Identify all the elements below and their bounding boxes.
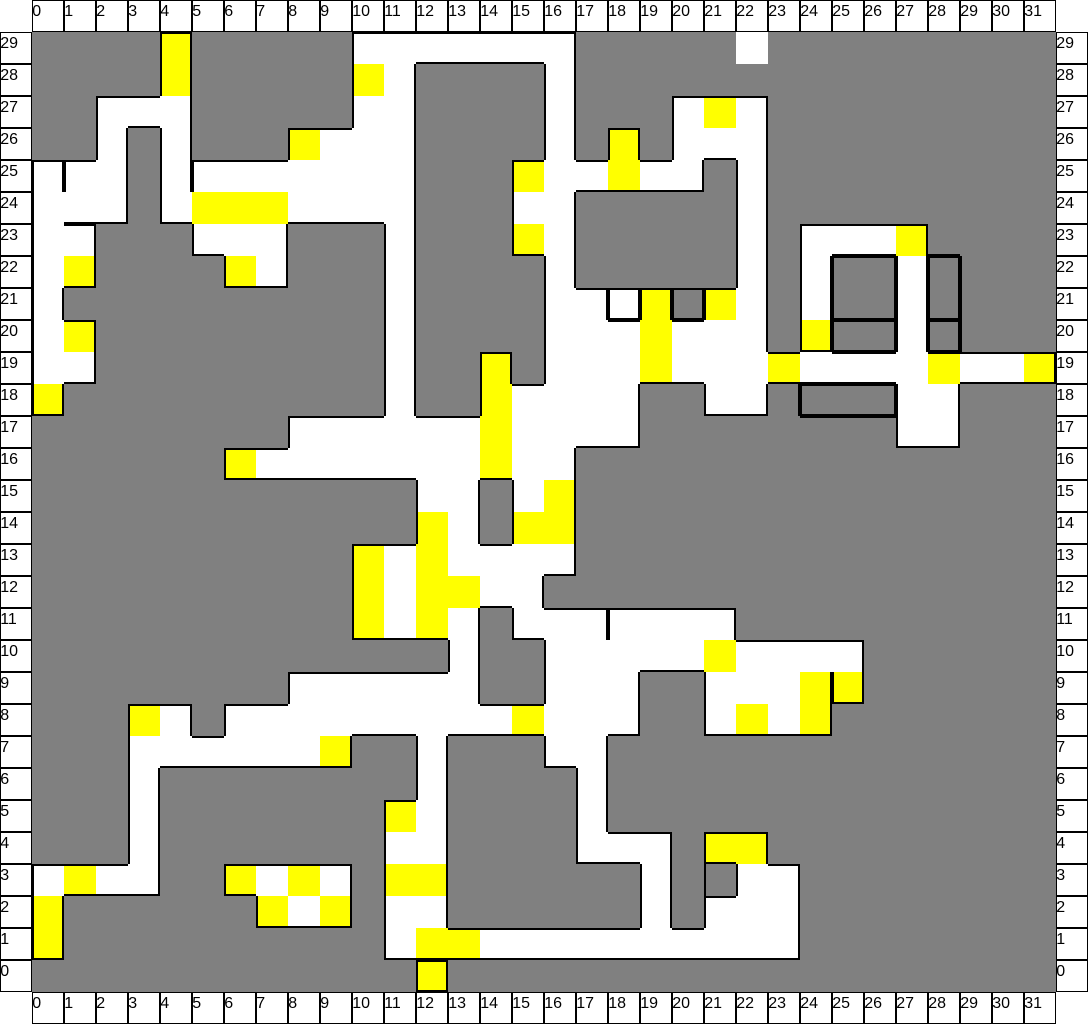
svg-text:19: 19 xyxy=(640,3,658,20)
svg-text:29: 29 xyxy=(0,35,18,52)
svg-text:16: 16 xyxy=(0,451,18,468)
svg-text:26: 26 xyxy=(864,3,882,20)
svg-text:21: 21 xyxy=(704,995,722,1012)
svg-text:24: 24 xyxy=(800,995,818,1012)
svg-text:13: 13 xyxy=(1056,547,1074,564)
svg-text:18: 18 xyxy=(608,995,626,1012)
svg-text:23: 23 xyxy=(0,227,18,244)
svg-text:16: 16 xyxy=(1056,451,1074,468)
svg-text:15: 15 xyxy=(1056,483,1074,500)
svg-text:10: 10 xyxy=(352,995,370,1012)
svg-text:20: 20 xyxy=(1056,323,1074,340)
svg-text:23: 23 xyxy=(1056,227,1074,244)
svg-text:26: 26 xyxy=(864,995,882,1012)
svg-text:17: 17 xyxy=(576,3,594,20)
svg-text:13: 13 xyxy=(0,547,18,564)
svg-text:17: 17 xyxy=(1056,419,1074,436)
svg-text:10: 10 xyxy=(1056,643,1074,660)
svg-text:6: 6 xyxy=(0,771,9,788)
svg-text:18: 18 xyxy=(1056,387,1074,404)
svg-text:7: 7 xyxy=(0,739,9,756)
svg-text:21: 21 xyxy=(0,291,18,308)
svg-text:16: 16 xyxy=(544,3,562,20)
svg-text:4: 4 xyxy=(1056,835,1065,852)
svg-text:2: 2 xyxy=(96,995,105,1012)
svg-text:20: 20 xyxy=(0,323,18,340)
svg-text:23: 23 xyxy=(768,3,786,20)
svg-text:14: 14 xyxy=(480,3,498,20)
svg-text:5: 5 xyxy=(192,3,201,20)
svg-text:20: 20 xyxy=(672,3,690,20)
svg-text:0: 0 xyxy=(32,3,41,20)
svg-text:21: 21 xyxy=(1056,291,1074,308)
svg-text:28: 28 xyxy=(928,3,946,20)
svg-text:0: 0 xyxy=(0,963,9,980)
svg-text:5: 5 xyxy=(0,803,9,820)
svg-text:17: 17 xyxy=(576,995,594,1012)
svg-text:24: 24 xyxy=(0,195,18,212)
svg-text:7: 7 xyxy=(256,3,265,20)
svg-text:28: 28 xyxy=(1056,67,1074,84)
svg-text:30: 30 xyxy=(992,3,1010,20)
svg-text:24: 24 xyxy=(1056,195,1074,212)
svg-text:19: 19 xyxy=(1056,355,1074,372)
svg-text:24: 24 xyxy=(800,3,818,20)
svg-text:25: 25 xyxy=(832,995,850,1012)
svg-text:10: 10 xyxy=(352,3,370,20)
svg-text:26: 26 xyxy=(0,131,18,148)
svg-text:21: 21 xyxy=(704,3,722,20)
svg-text:31: 31 xyxy=(1024,3,1042,20)
svg-text:22: 22 xyxy=(736,995,754,1012)
svg-text:6: 6 xyxy=(224,995,233,1012)
svg-text:1: 1 xyxy=(1056,931,1065,948)
svg-text:22: 22 xyxy=(0,259,18,276)
svg-text:5: 5 xyxy=(192,995,201,1012)
svg-text:1: 1 xyxy=(64,995,73,1012)
svg-text:25: 25 xyxy=(832,3,850,20)
svg-text:28: 28 xyxy=(0,67,18,84)
svg-text:8: 8 xyxy=(288,995,297,1012)
svg-text:9: 9 xyxy=(320,995,329,1012)
svg-text:15: 15 xyxy=(512,995,530,1012)
svg-text:4: 4 xyxy=(160,3,169,20)
svg-text:3: 3 xyxy=(128,3,137,20)
svg-text:31: 31 xyxy=(1024,995,1042,1012)
svg-text:4: 4 xyxy=(0,835,9,852)
svg-text:29: 29 xyxy=(960,3,978,20)
svg-text:19: 19 xyxy=(0,355,18,372)
svg-text:15: 15 xyxy=(0,483,18,500)
svg-text:12: 12 xyxy=(1056,579,1074,596)
svg-text:5: 5 xyxy=(1056,803,1065,820)
svg-text:15: 15 xyxy=(512,3,530,20)
svg-text:8: 8 xyxy=(1056,707,1065,724)
svg-text:0: 0 xyxy=(32,995,41,1012)
svg-text:25: 25 xyxy=(0,163,18,180)
svg-text:8: 8 xyxy=(0,707,9,724)
svg-text:7: 7 xyxy=(256,995,265,1012)
svg-text:11: 11 xyxy=(1056,611,1073,628)
svg-text:29: 29 xyxy=(960,995,978,1012)
svg-text:6: 6 xyxy=(1056,771,1065,788)
svg-text:2: 2 xyxy=(96,3,105,20)
svg-text:9: 9 xyxy=(320,3,329,20)
svg-text:2: 2 xyxy=(0,899,9,916)
svg-text:3: 3 xyxy=(128,995,137,1012)
svg-text:7: 7 xyxy=(1056,739,1065,756)
svg-text:8: 8 xyxy=(288,3,297,20)
svg-text:11: 11 xyxy=(384,995,401,1012)
svg-text:14: 14 xyxy=(1056,515,1074,532)
svg-text:18: 18 xyxy=(608,3,626,20)
svg-text:19: 19 xyxy=(640,995,658,1012)
svg-text:27: 27 xyxy=(896,3,914,20)
svg-text:0: 0 xyxy=(1056,963,1065,980)
svg-text:18: 18 xyxy=(0,387,18,404)
svg-text:2: 2 xyxy=(1056,899,1065,916)
svg-text:12: 12 xyxy=(0,579,18,596)
svg-text:3: 3 xyxy=(1056,867,1065,884)
svg-text:22: 22 xyxy=(1056,259,1074,276)
svg-text:30: 30 xyxy=(992,995,1010,1012)
svg-text:1: 1 xyxy=(0,931,9,948)
svg-text:16: 16 xyxy=(544,995,562,1012)
svg-text:11: 11 xyxy=(0,611,17,628)
svg-text:9: 9 xyxy=(0,675,9,692)
svg-text:1: 1 xyxy=(64,3,73,20)
svg-text:23: 23 xyxy=(768,995,786,1012)
svg-text:27: 27 xyxy=(896,995,914,1012)
svg-text:20: 20 xyxy=(672,995,690,1012)
svg-text:13: 13 xyxy=(448,3,466,20)
svg-text:10: 10 xyxy=(0,643,18,660)
svg-text:3: 3 xyxy=(0,867,9,884)
svg-text:11: 11 xyxy=(384,3,401,20)
svg-text:14: 14 xyxy=(0,515,18,532)
svg-text:4: 4 xyxy=(160,995,169,1012)
svg-text:9: 9 xyxy=(1056,675,1065,692)
svg-text:28: 28 xyxy=(928,995,946,1012)
svg-text:27: 27 xyxy=(0,99,18,116)
svg-text:13: 13 xyxy=(448,995,466,1012)
svg-text:17: 17 xyxy=(0,419,18,436)
svg-text:26: 26 xyxy=(1056,131,1074,148)
svg-text:22: 22 xyxy=(736,3,754,20)
svg-text:25: 25 xyxy=(1056,163,1074,180)
svg-text:12: 12 xyxy=(416,995,434,1012)
svg-text:12: 12 xyxy=(416,3,434,20)
svg-text:29: 29 xyxy=(1056,35,1074,52)
svg-text:27: 27 xyxy=(1056,99,1074,116)
svg-text:6: 6 xyxy=(224,3,233,20)
svg-text:14: 14 xyxy=(480,995,498,1012)
